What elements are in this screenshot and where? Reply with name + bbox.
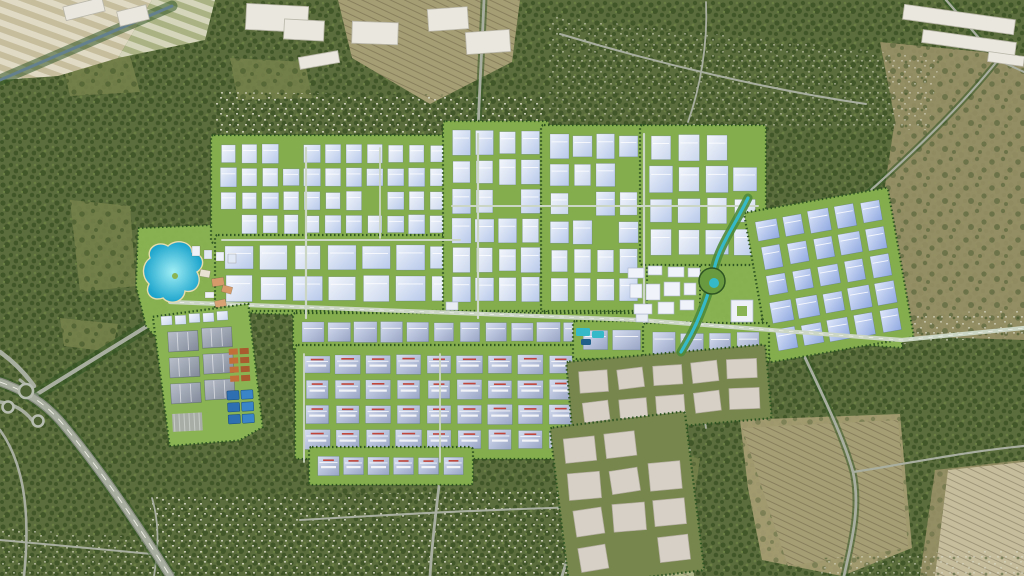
warehouse-building [550,134,569,159]
treatment-pool [228,414,240,424]
warehouse-building [396,245,425,270]
warehouse-building [511,323,533,341]
roof-ridge [652,237,669,238]
red-accent [494,433,505,435]
roof-ridge [522,255,538,256]
warehouse-building [823,291,845,313]
warehouse-building [651,136,671,160]
roof-band [431,415,448,417]
roof-ridge [347,197,360,198]
roof-ridge [243,220,256,221]
warehouse-building [573,220,592,244]
warehouse-building [346,168,362,187]
warehouse-building [521,131,539,154]
urban-block [729,387,760,409]
red-accent [449,460,459,462]
red-accent [524,358,537,360]
roof-ridge [653,143,669,144]
office-tower [664,282,680,296]
roof-ridge [454,196,469,197]
red-accent [403,408,414,410]
warehouse-building [838,231,863,255]
red-accent [524,433,536,435]
warehouse-building [346,144,362,163]
factory-building [168,330,199,352]
roof-ridge [574,142,590,143]
roof-ridge [487,328,504,329]
roof-band [369,390,386,392]
roof-ridge [306,436,328,437]
roof-band [308,365,326,367]
treatment-pool [241,402,253,412]
roof-ridge [436,328,452,329]
warehouse-building [260,245,288,269]
roof-ridge [389,221,403,222]
roof-ridge [598,141,613,142]
roof-band [521,390,539,392]
roof-band [370,440,386,442]
warehouse-building [847,285,873,311]
roof-ridge [430,386,448,387]
roof-ridge [369,221,381,222]
roof-ridge [522,197,538,198]
roof-ridge [367,411,388,412]
resort-building [212,277,225,287]
roof-ridge [304,328,323,329]
roof-band [492,390,509,392]
roof-ridge [295,284,320,285]
red-accent [372,433,384,435]
roof-ridge [389,197,403,198]
red-accent [555,383,566,385]
office-tower [630,284,642,298]
urban-block [619,398,648,419]
red-accent [312,383,323,385]
roof-ridge [520,411,540,412]
warehouse-building [499,249,516,271]
roof-ridge [552,171,568,172]
red-accent [341,383,353,385]
warehouse-building [284,215,298,234]
container-stack [241,375,250,381]
roof-ridge [478,255,491,256]
roundabout-1 [3,402,14,413]
roof-ridge [284,174,298,175]
roof-ridge [399,386,418,387]
warehouse-building [550,164,569,186]
roof-ridge [308,411,327,412]
roof-ridge [285,197,298,198]
roof-ridge [552,285,566,286]
roof-ridge [243,174,256,175]
roof-ridge [453,226,469,227]
warehouse-building [787,241,809,265]
roof-ridge [735,175,755,176]
urban-block [567,471,601,500]
roof-ridge [458,361,480,362]
roof-band [308,440,326,442]
container-stack [240,348,249,354]
retention-pond [576,328,590,336]
warehouse-building [574,249,591,273]
urban-block [578,544,609,572]
container-stack [229,357,238,363]
red-accent [555,408,567,410]
container-stack [229,348,238,354]
warehouse-building [807,208,832,234]
red-accent [398,460,408,462]
warehouse-building [813,236,835,260]
masterplan-aerial-scene [0,0,1024,576]
roof-ridge [500,285,514,286]
roof-ridge [520,386,542,387]
existing-warehouse [465,29,510,54]
roof-ridge [462,328,478,329]
red-accent [463,383,475,385]
urban-block [604,431,637,459]
container-stack [230,375,239,381]
warehouse-building [766,273,788,296]
support-building [203,313,214,323]
row-south-edge-zone [309,447,473,485]
red-accent [494,408,506,410]
existing-warehouse [427,7,468,32]
warehouse-building [782,214,804,237]
warehouse-building [263,216,277,233]
roof-band [553,415,569,417]
roof-ridge [410,174,424,175]
urban-block [657,534,690,563]
roundabout-0 [19,384,33,398]
urban-block [573,507,605,537]
warehouse-building [221,192,236,209]
resort-building [216,252,224,261]
red-accent [342,433,354,435]
warehouse-building [551,278,568,301]
warehouse-building [574,164,590,185]
warehouse-building [409,191,424,210]
retention-pond [592,331,604,338]
roof-ridge [308,386,326,387]
urban-block [691,360,719,383]
office-tower [684,283,696,295]
warehouse-building [460,322,480,342]
warehouse-building [409,145,424,162]
roof-ridge [263,197,277,198]
warehouse-building [755,218,780,241]
warehouse-building [452,189,470,214]
red-accent [402,358,414,360]
roof-ridge [382,328,401,329]
roof-ridge [429,361,449,362]
red-accent [372,358,384,360]
warehouse-building [597,250,613,272]
lake-island [172,273,178,279]
roof-ridge [223,150,235,151]
red-accent [524,383,537,385]
warehouse-building [707,135,727,160]
warehouse-building [522,277,540,302]
red-accent [423,460,433,462]
warehouse-building [326,193,340,209]
warehouse-building [396,276,426,301]
office-tower [634,304,652,314]
red-accent [372,409,385,411]
warehouse-building [328,322,351,341]
warehouse-building [853,312,875,337]
roof-band [431,365,448,367]
roof-ridge [478,197,492,198]
warehouse-building [817,264,840,287]
warehouse-building [242,215,257,234]
roof-band [399,440,417,442]
warehouse-building [880,308,902,333]
roof-band [431,440,448,442]
roof-ridge [621,256,636,257]
warehouse-building [453,161,470,183]
warehouse-building [733,167,757,191]
warehouse-building [521,189,540,213]
roof-band [369,415,387,417]
roof-ridge [478,167,492,168]
roof-ridge [408,328,426,329]
roof-band [369,365,386,367]
roof-ridge [338,436,357,437]
roof-ridge [347,221,360,222]
roof-ridge [243,150,256,151]
grid-nw-small-zone [211,135,455,243]
urban-block [693,390,721,413]
roof-ridge [708,174,727,175]
warehouse-building [242,168,257,186]
container-stack [241,366,250,372]
roof-ridge [337,386,358,387]
warehouse-building [706,166,728,193]
warehouse-building [679,230,700,255]
roof-band [400,365,417,367]
roof-band [309,415,325,417]
warehouse-building [388,145,403,162]
roof-ridge [431,174,444,175]
warehouse-building [262,144,279,163]
roof-band [339,390,356,392]
warehouse-building [407,322,429,342]
roof-ridge [551,411,571,412]
grid-w-mid-zone [215,235,469,311]
warehouse-building [363,275,389,301]
office-tower [658,302,674,314]
roof-ridge [520,436,540,437]
red-accent [372,383,384,385]
red-accent [311,408,322,410]
roof-ridge [711,339,729,340]
warehouse-building [597,279,614,301]
red-accent [494,359,506,361]
roof-ridge [490,386,510,387]
roof-band [522,415,539,417]
roof-ridge [553,257,566,258]
roof-ridge [410,150,422,151]
roof-ridge [459,386,480,387]
roof-ridge [228,283,250,284]
roof-ridge [395,463,412,464]
red-accent [403,383,414,385]
red-accent [524,408,536,410]
existing-warehouse [284,19,325,41]
warehouse-building [650,199,672,222]
urban-block [726,358,757,378]
roof-band [340,440,356,442]
office-tower [648,266,662,275]
roof-ridge [523,284,538,285]
warehouse-building [596,163,615,186]
warehouse-building [620,192,637,215]
treatment-pool [241,390,253,400]
warehouse-building [498,218,516,242]
red-accent [464,433,475,435]
warehouse-building [325,168,340,186]
roof-ridge [356,328,376,329]
utility-campus-layer [152,303,263,446]
roof-ridge [263,150,277,151]
warehouse-building [354,322,377,343]
roof-band [491,415,508,417]
office-tower [680,300,694,310]
treatment-pool [227,402,239,412]
warehouse-building [769,299,794,323]
roof-band [553,390,569,392]
warehouse-building [870,253,892,278]
warehouse-building [619,136,638,157]
urban-block [653,364,683,385]
roof-ridge [285,220,297,221]
roof-ridge [420,463,437,464]
roof-ridge [552,141,568,142]
warehouse-building [408,168,424,187]
roof-ridge [576,171,590,172]
warehouse-building [284,191,299,210]
warehouse-building [499,159,516,185]
roof-ridge [262,253,285,254]
roof-ridge [327,174,340,175]
roof-ridge [429,436,449,437]
roof-ridge [459,411,479,412]
roof-ridge [338,411,357,412]
warehouse-building [795,295,820,319]
roof-ridge [399,252,423,253]
roof-ridge [330,328,349,329]
roof-ridge [222,173,236,174]
roof-ridge [347,150,360,151]
roof-ridge [454,138,469,139]
warehouse-building [575,278,591,301]
red-accent [433,408,445,410]
roof-ridge [576,285,589,286]
village-houses [150,490,624,576]
roof-ridge [345,463,362,464]
roof-ridge [552,228,568,229]
office-tower [628,268,644,278]
warehouse-building [761,244,783,270]
roof-ridge [410,220,424,221]
roof-ridge [454,255,469,256]
roof-ridge [331,284,354,285]
resort-building [228,254,236,263]
roof-ridge [227,253,251,254]
resort-building [199,269,210,278]
gateway-plaza-0 [446,302,458,310]
warehouse-building [293,276,323,300]
warehouse-building [408,215,424,234]
roof-band [346,466,360,468]
roof-ridge [398,284,423,285]
retention-pond [581,339,591,345]
resort-building [204,250,212,259]
roof-ridge [651,174,671,175]
roof-ridge [454,168,468,169]
roof-ridge [397,436,419,437]
red-accent [402,433,415,435]
roof-ridge [366,283,388,284]
red-accent [463,408,475,410]
resort-building [192,246,200,256]
warehouse-building [619,222,638,243]
red-accent [555,359,566,361]
warehouse-building [679,135,700,161]
warehouse-building [242,193,256,209]
warehouse-building [521,160,540,185]
warehouse-building [651,229,672,255]
roof-ridge [500,226,515,227]
roof-ridge [500,256,514,257]
parking-stripes [172,412,203,432]
roof-ridge [389,174,403,175]
roof-ridge [460,436,479,437]
warehouse-building [388,169,404,186]
urban-block [609,467,640,494]
office-tower [668,267,684,277]
warehouse-building [453,130,471,155]
warehouse-building [380,322,402,343]
warehouse-building [826,317,850,342]
warehouse-building [346,191,361,210]
roof-band [447,466,461,468]
urban-block [617,367,645,390]
red-accent [494,383,506,385]
warehouse-building [362,246,390,269]
roof-ridge [620,228,636,229]
roof-ridge [319,462,337,463]
roof-ridge [429,411,449,412]
red-accent [342,408,353,410]
container-stack [240,357,249,363]
red-accent [434,383,445,385]
roof-ridge [708,143,725,144]
warehouse-building [261,277,286,300]
roof-ridge [513,328,531,329]
roof-ridge [615,336,638,337]
warehouse-building [325,144,341,163]
warehouse-building [550,222,569,244]
roof-band [431,390,446,392]
roof-ridge [489,410,510,411]
warehouse-building [678,199,700,223]
roof-band [401,390,417,392]
treatment-pool [227,390,239,400]
roof-ridge [243,197,255,198]
roof-ridge [368,361,389,362]
roof-ridge [263,284,284,285]
